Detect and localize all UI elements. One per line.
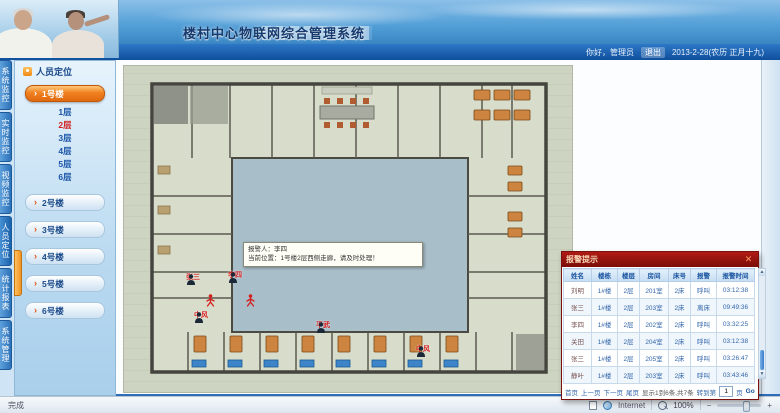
close-icon[interactable]: ✕ — [743, 254, 754, 265]
table-cell: 205室 — [640, 350, 669, 367]
table-cell: 2层 — [618, 367, 640, 384]
photo-figure — [0, 28, 52, 58]
photo-figure — [52, 30, 104, 58]
zoom-slider[interactable] — [717, 404, 761, 407]
person-icon — [23, 67, 32, 76]
table-row[interactable]: 静叶1#楼2层203室2床呼叫03:43:46 — [564, 367, 755, 384]
person-locating-panel: 人员定位 ›1号楼1层2层3层4层5层6层›2号楼›3号楼›4号楼›5号楼›6号… — [14, 60, 116, 396]
building-label: 1号楼 — [42, 88, 64, 100]
alarm-table-header: 姓名楼栋楼层房间床号报警报警时间 — [564, 269, 755, 282]
table-cell: 203室 — [640, 367, 669, 384]
table-cell: 1#楼 — [592, 367, 618, 384]
page-unit-label: 页 — [736, 387, 743, 397]
building-list: ›1号楼1层2层3层4层5层6层›2号楼›3号楼›4号楼›5号楼›6号楼 — [15, 85, 115, 319]
utility-room — [190, 86, 228, 124]
status-right-cluster: Internet 100% − + — [589, 400, 772, 410]
scroll-up-icon[interactable]: ▲ — [759, 269, 765, 276]
scroll-down-icon[interactable]: ▼ — [759, 371, 765, 378]
panel-title: 人员定位 — [36, 65, 72, 78]
table-cell: 204室 — [640, 333, 669, 350]
arrow-icon: › — [34, 89, 37, 98]
table-row[interactable]: 李四1#楼2层202室2床呼叫03:32:25 — [564, 316, 755, 333]
building-button-4[interactable]: ›4号楼 — [25, 248, 105, 265]
sidebar-tab-5[interactable]: 统计报表 — [0, 268, 12, 318]
column-header: 报警时间 — [717, 269, 755, 282]
rooms-left-band — [152, 158, 232, 332]
app-window: 楼村中心物联网综合管理系统 你好，管理员 退出 2013-2-28(农历 正月十… — [0, 0, 780, 413]
header-photo — [0, 0, 119, 58]
sidebar-tab-4[interactable]: 人员定位 — [0, 216, 12, 266]
scrollbar-thumb[interactable] — [760, 350, 764, 370]
photo-figure — [68, 12, 84, 30]
photo-figure — [14, 10, 32, 30]
zoom-icon — [658, 401, 667, 410]
zoom-level: 100% — [673, 401, 693, 410]
photo-figure — [84, 14, 110, 27]
goto-label: 转到第 — [697, 387, 717, 397]
table-cell: 2床 — [669, 350, 691, 367]
separator — [651, 400, 652, 410]
floor-link-3[interactable]: 3层 — [58, 132, 71, 145]
floor-plan-canvas[interactable]: 报警人：李四 当前位置：1号楼2层西侧走廊，请及时处理！ 张三李四中风平武中风 — [124, 66, 572, 392]
sidebar-tab-2[interactable]: 实时监控 — [0, 112, 12, 162]
document-icon — [589, 401, 597, 410]
table-cell: 1#楼 — [592, 316, 618, 333]
table-cell: 203室 — [640, 299, 669, 316]
building-button-1[interactable]: ›1号楼 — [25, 85, 105, 102]
table-cell: 2层 — [618, 333, 640, 350]
table-row[interactable]: 关田1#楼2层204室2床呼叫03:12:38 — [564, 333, 755, 350]
arrow-icon: › — [34, 279, 37, 288]
floor-link-1[interactable]: 1层 — [58, 106, 71, 119]
table-cell: 03:12:38 — [717, 333, 755, 350]
sidebar-tab-strip: 系统监控实时监控视频监控人员定位统计报表系统管理 — [0, 60, 14, 396]
table-cell: 09:49:36 — [717, 299, 755, 316]
table-row[interactable]: 张三1#楼2层203室2床离床09:49:36 — [564, 299, 755, 316]
table-cell: 03:26:47 — [717, 350, 755, 367]
table-cell: 2层 — [618, 282, 640, 299]
table-cell: 201室 — [640, 282, 669, 299]
alarm-table: 姓名楼栋楼层房间床号报警报警时间 刘明1#楼2层201室2床呼叫03:12:38… — [563, 268, 755, 384]
column-header: 姓名 — [564, 269, 592, 282]
arrow-icon: › — [34, 225, 37, 234]
table-cell: 呼叫 — [691, 350, 717, 367]
building-button-6[interactable]: ›6号楼 — [25, 302, 105, 319]
table-cell: 张三 — [564, 350, 592, 367]
column-header: 楼栋 — [592, 269, 618, 282]
page-link-4[interactable]: 尾页 — [626, 387, 639, 397]
alarm-popup-title: 报警提示 — [566, 254, 598, 265]
table-cell: 2层 — [618, 316, 640, 333]
table-cell: 李四 — [564, 316, 592, 333]
floor-link-4[interactable]: 4层 — [58, 145, 71, 158]
table-cell: 03:12:38 — [717, 282, 755, 299]
table-cell: 03:32:25 — [717, 316, 755, 333]
column-header: 房间 — [640, 269, 669, 282]
building-button-5[interactable]: ›5号楼 — [25, 275, 105, 292]
table-cell: 202室 — [640, 316, 669, 333]
alarm-popup-titlebar: 报警提示 ✕ — [562, 252, 758, 267]
zone-label: Internet — [618, 401, 645, 410]
user-greeting: 你好，管理员 — [586, 47, 634, 58]
table-cell: 张三 — [564, 299, 592, 316]
app-title: 楼村中心物联网综合管理系统 — [183, 23, 365, 42]
tooltip-line2: 当前位置：1号楼2层西侧走廊，请及时处理！ — [248, 254, 418, 263]
table-cell: 2床 — [669, 299, 691, 316]
floor-link-2[interactable]: 2层 — [58, 119, 71, 132]
table-cell: 离床 — [691, 299, 717, 316]
table-cell: 2床 — [669, 333, 691, 350]
table-cell: 1#楼 — [592, 350, 618, 367]
table-cell: 1#楼 — [592, 282, 618, 299]
alarm-popup: 报警提示 ✕ 姓名楼栋楼层房间床号报警报警时间 刘明1#楼2层201室2床呼叫0… — [561, 251, 759, 400]
pagination-bar: 首页上一页下一页尾页 显示1到6条,共7条 转到第 页 Go — [563, 384, 757, 399]
column-header: 床号 — [669, 269, 691, 282]
table-cell: 2床 — [669, 316, 691, 333]
banner-cloud-decor — [420, 0, 750, 20]
table-scrollbar[interactable]: ▲ ▼ — [758, 268, 766, 379]
tooltip-line1: 报警人：李四 — [248, 245, 418, 254]
table-cell: 2层 — [618, 299, 640, 316]
sidebar-tab-3[interactable]: 视频监控 — [0, 164, 12, 214]
building-button-2[interactable]: ›2号楼 — [25, 194, 105, 211]
column-header: 楼层 — [618, 269, 640, 282]
table-cell: 刘明 — [564, 282, 592, 299]
arrow-icon: › — [34, 306, 37, 315]
zoom-out-button[interactable]: − — [707, 401, 712, 410]
page-number-input[interactable] — [719, 386, 733, 397]
location-tooltip: 报警人：李四 当前位置：1号楼2层西侧走廊，请及时处理！ — [243, 242, 423, 267]
pagination-info: 显示1到6条,共7条 — [642, 387, 694, 397]
table-cell: 关田 — [564, 333, 592, 350]
arrow-icon: › — [34, 198, 37, 207]
utility-room — [516, 334, 544, 370]
table-cell: 1#楼 — [592, 299, 618, 316]
table-cell: 呼叫 — [691, 367, 717, 384]
building-label: 3号楼 — [42, 224, 64, 236]
person-marker[interactable]: 中风 — [416, 346, 430, 353]
building-button-3[interactable]: ›3号楼 — [25, 221, 105, 238]
panel-header: 人员定位 — [15, 61, 115, 81]
building-label: 4号楼 — [42, 251, 64, 263]
person-marker[interactable]: 李四 — [228, 272, 242, 279]
floor-link-6[interactable]: 6层 — [58, 171, 71, 184]
alarm-table-body: 刘明1#楼2层201室2床呼叫03:12:38张三1#楼2层203室2床离床09… — [564, 282, 755, 384]
panel-collapse-handle[interactable] — [14, 250, 22, 296]
building-label: 5号楼 — [42, 278, 64, 290]
table-cell: 呼叫 — [691, 316, 717, 333]
sidebar-tab-1[interactable]: 系统监控 — [0, 60, 12, 110]
page-link-3[interactable]: 下一页 — [604, 387, 624, 397]
building-label: 6号楼 — [42, 305, 64, 317]
date-display: 2013-2-28(农历 正月十九) — [672, 47, 764, 58]
table-cell: 2层 — [618, 350, 640, 367]
table-cell: 2床 — [669, 282, 691, 299]
floor-list: 1层2层3层4层5层6层 — [15, 106, 115, 184]
table-cell: 2床 — [669, 367, 691, 384]
table-cell: 静叶 — [564, 367, 592, 384]
go-button[interactable]: Go — [746, 388, 755, 395]
table-cell: 03:43:46 — [717, 367, 755, 384]
rooms-right-band — [468, 158, 546, 332]
zoom-in-button[interactable]: + — [767, 401, 772, 410]
page-link-1[interactable]: 首页 — [565, 387, 578, 397]
table-row[interactable]: 张三1#楼2层205室2床呼叫03:26:47 — [564, 350, 755, 367]
alarm-popup-body: 姓名楼栋楼层房间床号报警报警时间 刘明1#楼2层201室2床呼叫03:12:38… — [563, 268, 757, 399]
zoom-slider-knob[interactable] — [743, 401, 750, 412]
arrow-icon: › — [34, 252, 37, 261]
status-text: 完成 — [8, 400, 24, 411]
logout-button[interactable]: 退出 — [641, 47, 665, 58]
table-row[interactable]: 刘明1#楼2层201室2床呼叫03:12:38 — [564, 282, 755, 299]
internet-zone-icon — [603, 401, 612, 410]
floor-link-5[interactable]: 5层 — [58, 158, 71, 171]
column-header: 报警 — [691, 269, 717, 282]
table-cell: 呼叫 — [691, 333, 717, 350]
table-cell: 1#楼 — [592, 333, 618, 350]
separator — [700, 400, 701, 410]
person-marker[interactable]: 平武 — [316, 322, 330, 329]
page-link-2[interactable]: 上一页 — [581, 387, 601, 397]
floor-plan-drawing — [124, 66, 572, 392]
building-label: 2号楼 — [42, 197, 64, 209]
person-marker[interactable]: 中风 — [194, 312, 208, 319]
utility-room — [154, 86, 188, 124]
table-cell: 呼叫 — [691, 282, 717, 299]
person-marker[interactable]: 张三 — [186, 274, 200, 281]
sidebar-tab-6[interactable]: 系统管理 — [0, 320, 12, 370]
